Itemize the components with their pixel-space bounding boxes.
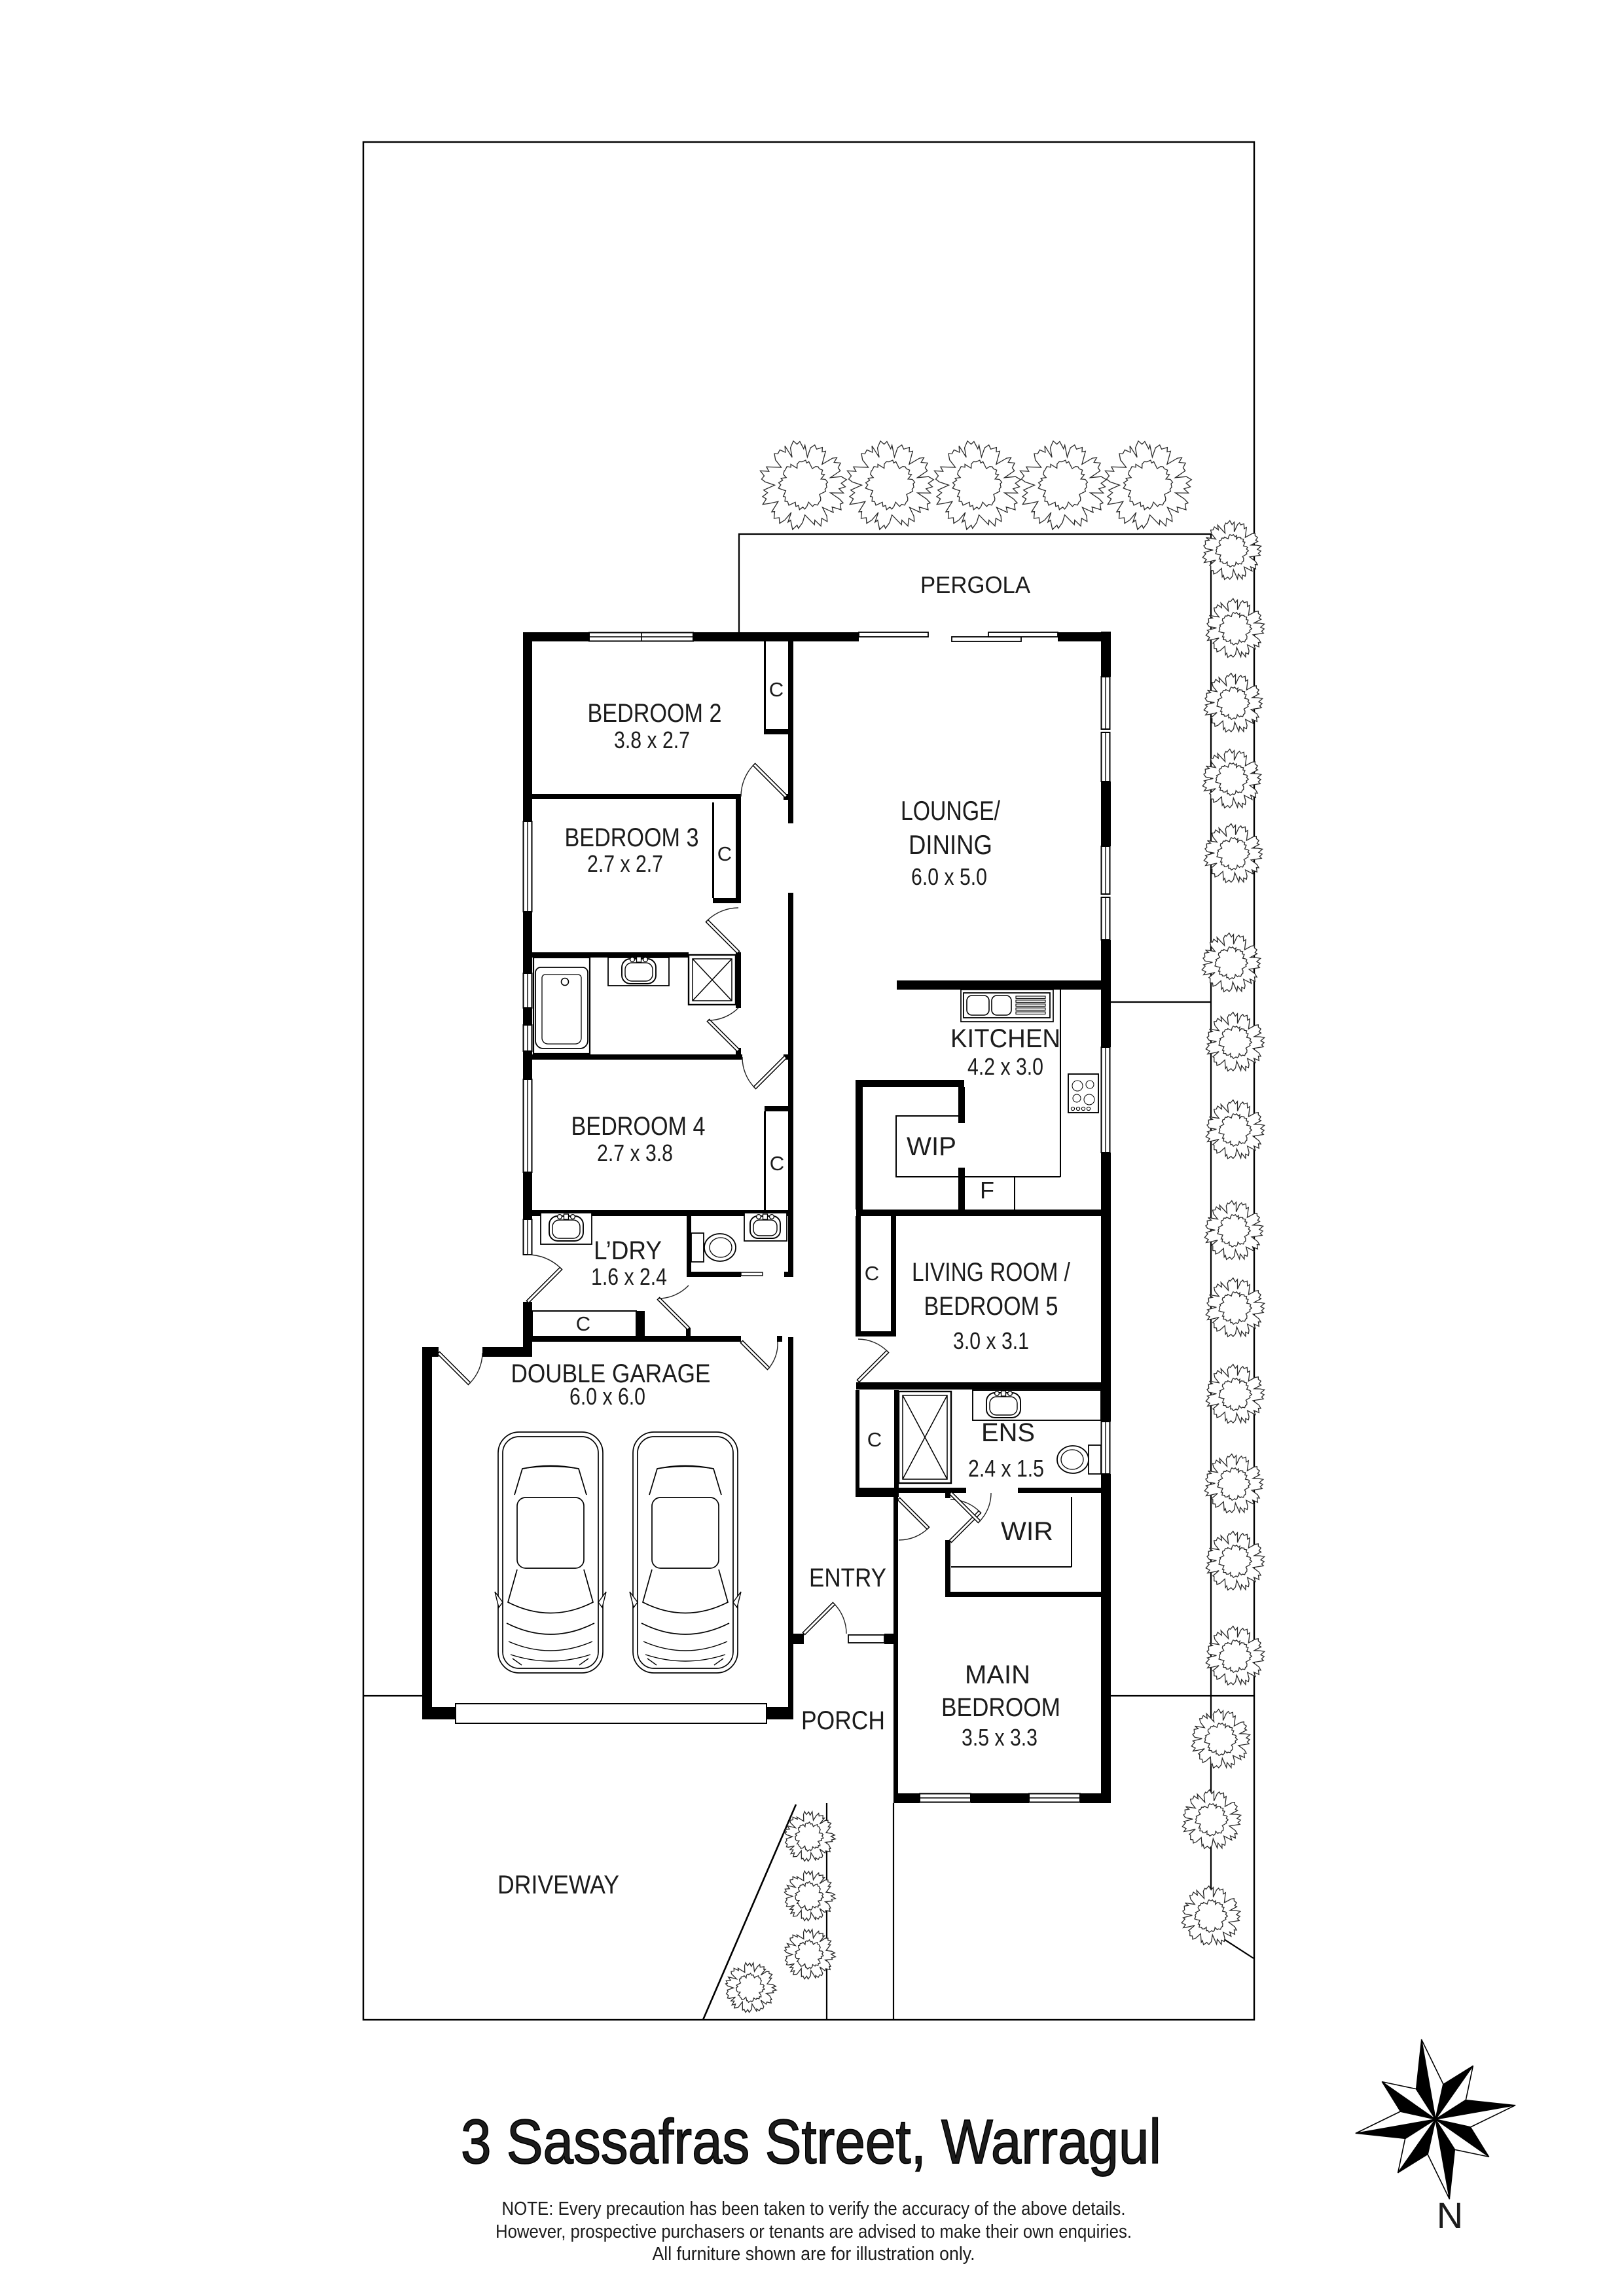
svg-text:3.0 x 3.1: 3.0 x 3.1 [953,1327,1029,1354]
svg-text:C: C [867,1428,882,1451]
svg-text:BEDROOM: BEDROOM [941,1693,1060,1722]
svg-text:3 Sassafras Street, Warragul: 3 Sassafras Street, Warragul [461,2107,1161,2177]
svg-text:NOTE: Every precaution has bee: NOTE: Every precaution has been taken to… [502,2198,1126,2219]
svg-text:WIP: WIP [907,1132,956,1161]
svg-text:MAIN: MAIN [965,1660,1030,1689]
svg-text:N: N [1437,2195,1463,2236]
svg-text:ENS: ENS [981,1418,1035,1447]
svg-text:However, prospective purchaser: However, prospective purchasers or tenan… [496,2221,1132,2242]
svg-text:3.5 x 3.3: 3.5 x 3.3 [962,1724,1038,1751]
svg-text:2.4 x 1.5: 2.4 x 1.5 [968,1455,1044,1482]
svg-text:BEDROOM 2: BEDROOM 2 [588,699,722,728]
svg-text:1.6 x 2.4: 1.6 x 2.4 [591,1263,667,1290]
svg-text:C: C [717,842,732,865]
svg-text:PERGOLA: PERGOLA [920,571,1030,598]
svg-text:LOUNGE/: LOUNGE/ [901,795,1000,826]
svg-text:6.0 x 5.0: 6.0 x 5.0 [911,863,987,890]
svg-text:L’DRY: L’DRY [594,1236,662,1265]
svg-text:DRIVEWAY: DRIVEWAY [497,1871,619,1899]
svg-text:2.7 x 3.8: 2.7 x 3.8 [597,1139,673,1166]
svg-text:C: C [576,1312,590,1335]
svg-text:KITCHEN: KITCHEN [950,1024,1060,1053]
svg-text:BEDROOM 3: BEDROOM 3 [565,823,699,852]
svg-text:3.8 x 2.7: 3.8 x 2.7 [614,726,690,753]
svg-text:C: C [770,1152,784,1175]
svg-text:6.0 x 6.0: 6.0 x 6.0 [569,1383,645,1410]
svg-text:4.2 x 3.0: 4.2 x 3.0 [967,1053,1043,1080]
svg-text:DINING: DINING [909,829,992,860]
svg-text:F: F [980,1177,994,1204]
svg-text:All furniture shown are for il: All furniture shown are for illustration… [653,2244,975,2265]
svg-text:C: C [865,1262,879,1285]
svg-text:C: C [769,678,784,701]
svg-text:WIR: WIR [1001,1517,1053,1546]
svg-text:BEDROOM 5: BEDROOM 5 [924,1292,1058,1321]
svg-text:2.7 x 2.7: 2.7 x 2.7 [587,850,663,877]
svg-text:LIVING ROOM /: LIVING ROOM / [912,1258,1071,1287]
svg-text:ENTRY: ENTRY [809,1564,886,1592]
svg-text:PORCH: PORCH [801,1706,885,1735]
svg-text:BEDROOM 4: BEDROOM 4 [571,1112,706,1141]
